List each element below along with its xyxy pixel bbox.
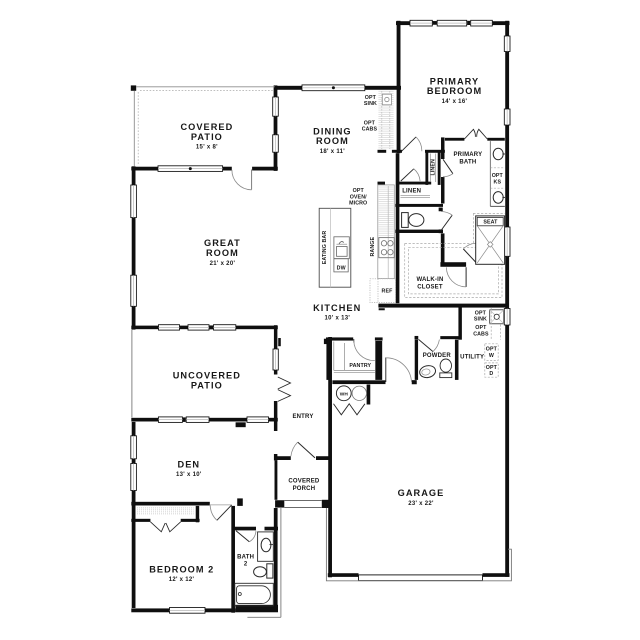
svg-text:PRIMARY: PRIMARY [453, 152, 482, 158]
svg-text:REF: REF [382, 288, 394, 294]
svg-text:CLOSET: CLOSET [417, 284, 443, 290]
svg-text:14' x 16': 14' x 16' [442, 99, 468, 105]
svg-text:DW: DW [337, 266, 346, 272]
svg-text:21' x 20': 21' x 20' [210, 261, 236, 267]
svg-text:15' x 8': 15' x 8' [196, 145, 218, 151]
svg-text:KITCHEN: KITCHEN [313, 303, 361, 313]
svg-text:COVERED: COVERED [288, 478, 320, 484]
svg-text:GARAGE: GARAGE [398, 488, 445, 498]
svg-text:OPT: OPT [486, 365, 498, 371]
svg-text:WALK-IN: WALK-IN [416, 277, 443, 283]
svg-text:LINEN: LINEN [431, 159, 437, 175]
svg-text:EATING BAR: EATING BAR [322, 231, 328, 265]
svg-text:GREAT: GREAT [204, 238, 241, 248]
svg-text:LINEN: LINEN [402, 188, 421, 194]
svg-text:OPT: OPT [353, 188, 365, 194]
svg-text:W: W [489, 353, 494, 359]
svg-text:BEDROOM: BEDROOM [427, 86, 482, 96]
svg-text:23' x 22': 23' x 22' [408, 501, 434, 507]
svg-text:BATH: BATH [459, 159, 476, 165]
svg-text:OPT: OPT [492, 173, 504, 179]
svg-text:WH: WH [340, 392, 349, 398]
svg-text:2: 2 [244, 562, 248, 568]
svg-text:COVERED: COVERED [181, 122, 234, 132]
svg-text:OPT: OPT [364, 121, 376, 127]
svg-text:D: D [489, 371, 493, 377]
svg-text:BATH: BATH [237, 555, 254, 561]
svg-text:CABS: CABS [473, 331, 489, 337]
svg-text:MICRO: MICRO [349, 201, 367, 207]
svg-text:DINING: DINING [313, 126, 351, 136]
svg-text:OPT: OPT [486, 347, 498, 353]
svg-text:PATIO: PATIO [191, 132, 223, 142]
svg-text:10' x 13': 10' x 13' [325, 316, 351, 322]
svg-text:ROOM: ROOM [316, 136, 349, 146]
svg-text:PATIO: PATIO [191, 380, 223, 390]
svg-text:BEDROOM 2: BEDROOM 2 [149, 565, 214, 575]
svg-text:OPT: OPT [475, 325, 487, 331]
svg-text:UNCOVERED: UNCOVERED [173, 370, 241, 380]
svg-text:OVEN/: OVEN/ [350, 194, 367, 200]
svg-text:12' x 12': 12' x 12' [169, 577, 195, 583]
svg-text:SEAT: SEAT [483, 219, 498, 225]
svg-text:ROOM: ROOM [206, 248, 239, 258]
svg-text:OPT: OPT [365, 95, 377, 101]
svg-text:KS: KS [494, 179, 502, 185]
svg-text:18' x 11': 18' x 11' [320, 149, 346, 155]
svg-text:POWDER: POWDER [423, 353, 452, 359]
svg-text:SINK: SINK [364, 101, 377, 107]
svg-text:OPT: OPT [475, 310, 487, 316]
svg-text:PRIMARY: PRIMARY [430, 76, 479, 86]
svg-text:PANTRY: PANTRY [349, 363, 371, 369]
svg-text:UTILITY: UTILITY [460, 355, 484, 361]
svg-text:CABS: CABS [362, 127, 378, 133]
svg-text:SINK: SINK [474, 317, 487, 323]
svg-text:13' x 10': 13' x 10' [176, 472, 202, 478]
svg-text:RANGE: RANGE [370, 237, 376, 257]
svg-text:PORCH: PORCH [293, 486, 316, 492]
svg-text:DEN: DEN [178, 460, 201, 470]
svg-text:ENTRY: ENTRY [292, 414, 313, 420]
